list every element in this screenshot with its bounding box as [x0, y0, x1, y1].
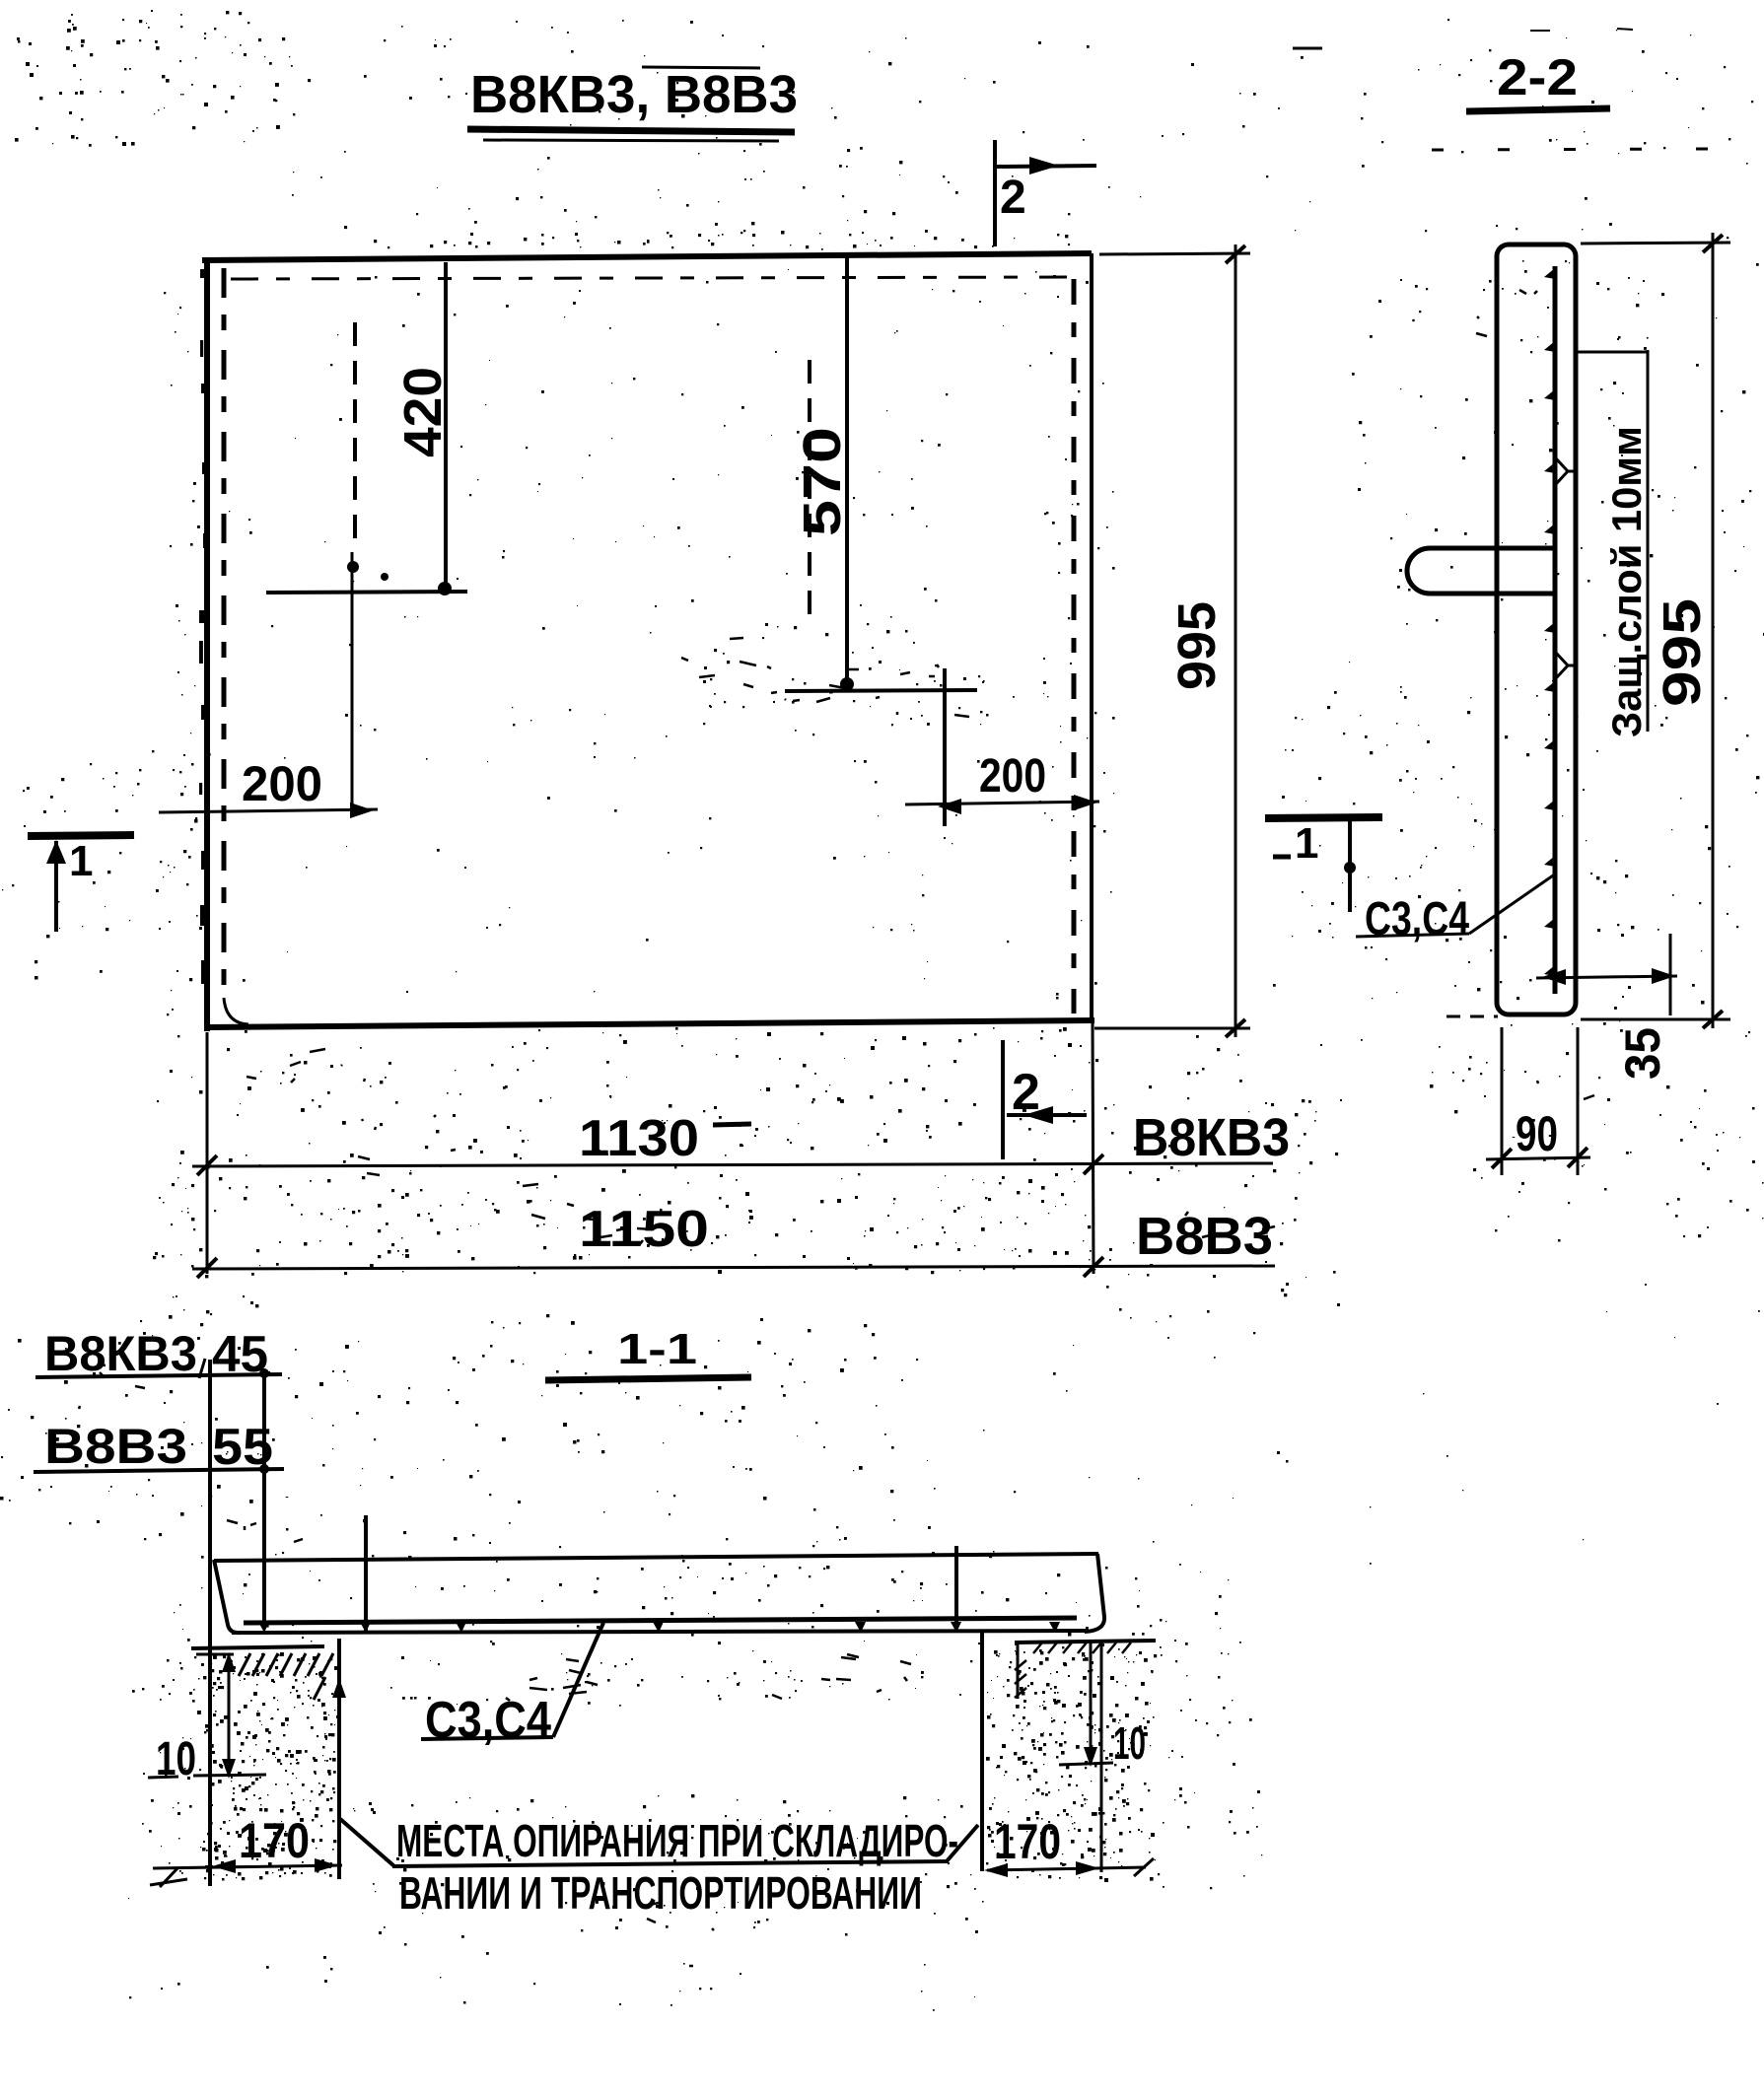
svg-text:170: 170: [994, 1814, 1061, 1869]
svg-text:1130: 1130: [579, 1110, 699, 1167]
svg-text:2: 2: [1000, 172, 1026, 224]
svg-text:1-1: 1-1: [617, 1325, 697, 1373]
svg-text:90: 90: [1516, 1106, 1558, 1161]
svg-text:ВАНИИ И ТРАНСПОРТИРОВАНИИ: ВАНИИ И ТРАНСПОРТИРОВАНИИ: [399, 1867, 922, 1919]
svg-text:МЕСТА ОПИРАНИЯ ПРИ СКЛАДИРО-: МЕСТА ОПИРАНИЯ ПРИ СКЛАДИРО-: [396, 1815, 958, 1866]
svg-text:200: 200: [979, 750, 1046, 803]
svg-text:В8КВ3: В8КВ3: [44, 1326, 197, 1381]
svg-text:10: 10: [1113, 1717, 1146, 1769]
svg-text:995: 995: [1167, 601, 1227, 690]
svg-text:570: 570: [793, 427, 852, 536]
svg-text:2: 2: [1012, 1064, 1040, 1121]
svg-text:170: 170: [239, 1813, 310, 1868]
svg-text:420: 420: [393, 367, 453, 457]
svg-text:200: 200: [242, 756, 322, 811]
svg-text:1: 1: [69, 837, 93, 885]
svg-text:1: 1: [1295, 819, 1318, 868]
svg-text:С3,С4: С3,С4: [1365, 893, 1469, 945]
svg-text:Защ.слой 10мм: Защ.слой 10мм: [1603, 426, 1650, 737]
svg-text:В8КВ3, В8В3: В8КВ3, В8В3: [470, 65, 798, 124]
svg-text:В8КВ3: В8КВ3: [1133, 1108, 1290, 1167]
svg-text:2-2: 2-2: [1497, 49, 1578, 106]
svg-text:35: 35: [1615, 1027, 1670, 1080]
svg-text:В8В3: В8В3: [44, 1419, 187, 1474]
